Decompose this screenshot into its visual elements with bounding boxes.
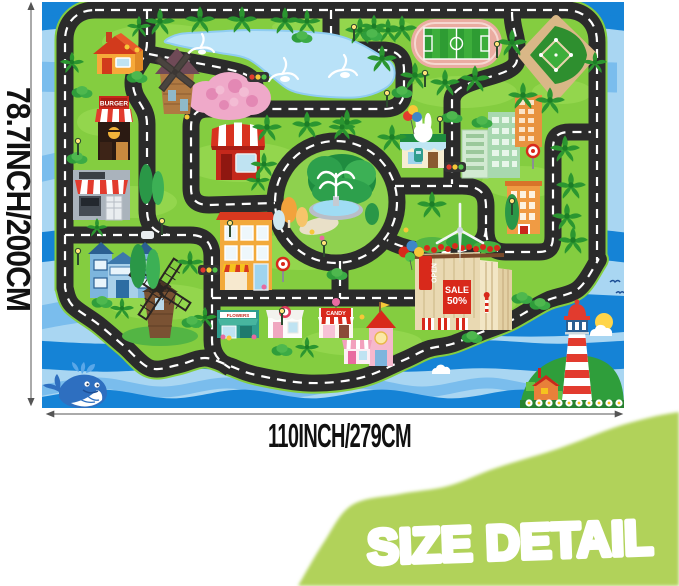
svg-text:SIZE DETAIL: SIZE DETAIL bbox=[366, 511, 654, 575]
svg-text:BURGER: BURGER bbox=[100, 101, 128, 108]
svg-text:SALE: SALE bbox=[445, 285, 469, 295]
svg-text:OPEN: OPEN bbox=[432, 263, 439, 283]
svg-text:CANDY: CANDY bbox=[326, 311, 346, 317]
svg-text:78.7INCH/200CM: 78.7INCH/200CM bbox=[0, 87, 37, 311]
svg-text:110INCH/279CM: 110INCH/279CM bbox=[268, 417, 411, 454]
svg-text:FLOWERS: FLOWERS bbox=[227, 313, 250, 318]
svg-text:50%: 50% bbox=[447, 296, 467, 307]
